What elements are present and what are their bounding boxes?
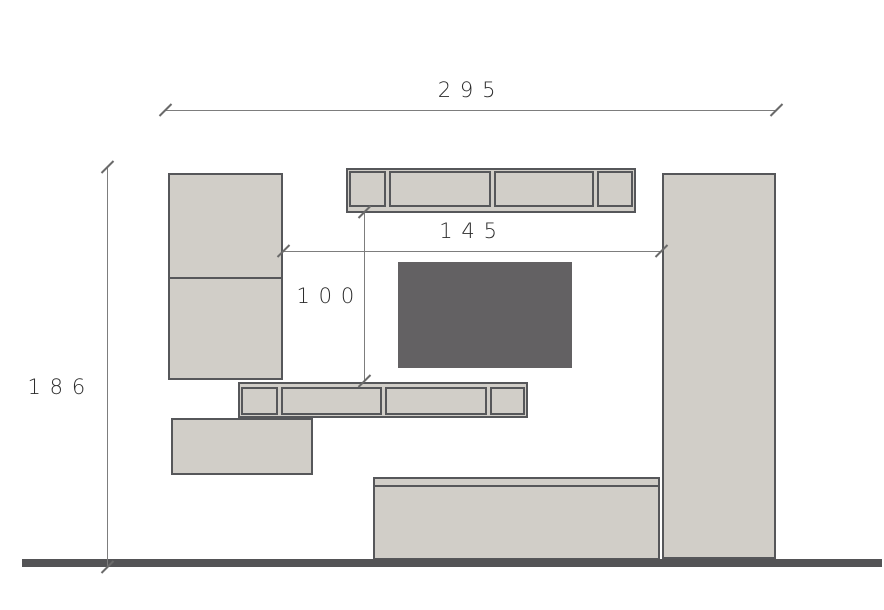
middle-shelf-compartment xyxy=(385,387,487,415)
middle-shelf-compartment xyxy=(281,387,382,415)
wall-unit-elevation-drawing: 295 186 145 100 xyxy=(0,0,884,610)
left-tall-cabinet xyxy=(168,173,283,380)
tv-screen xyxy=(398,262,572,368)
top-shelf-compartment xyxy=(349,171,386,207)
dimension-tick xyxy=(770,103,783,116)
floor-line xyxy=(22,559,882,567)
dimension-niche-width-value: 145 xyxy=(439,218,506,245)
dimension-tick xyxy=(159,103,172,116)
dimension-niche-height-value: 100 xyxy=(296,283,363,310)
dimension-niche-width: 145 xyxy=(283,251,662,252)
top-shelf-compartment xyxy=(597,171,633,207)
base-cabinet-top-panel xyxy=(375,479,658,487)
left-cabinet-divider xyxy=(170,277,281,279)
dimension-overall-height-value: 186 xyxy=(27,374,94,401)
dimension-overall-height: 186 xyxy=(107,167,108,567)
lower-left-cabinet xyxy=(171,418,313,475)
base-cabinet xyxy=(373,477,660,559)
middle-shelf-compartment xyxy=(490,387,525,415)
middle-wall-shelf xyxy=(238,382,528,418)
top-shelf-compartment xyxy=(494,171,593,207)
right-tall-cabinet xyxy=(662,173,776,559)
dimension-tick xyxy=(101,160,114,173)
dimension-overall-width: 295 xyxy=(165,110,777,111)
top-shelf-compartment xyxy=(389,171,491,207)
dimension-overall-width-value: 295 xyxy=(438,77,505,104)
dimension-niche-height: 100 xyxy=(364,212,365,381)
middle-shelf-compartment xyxy=(241,387,278,415)
top-wall-shelf xyxy=(346,168,636,213)
